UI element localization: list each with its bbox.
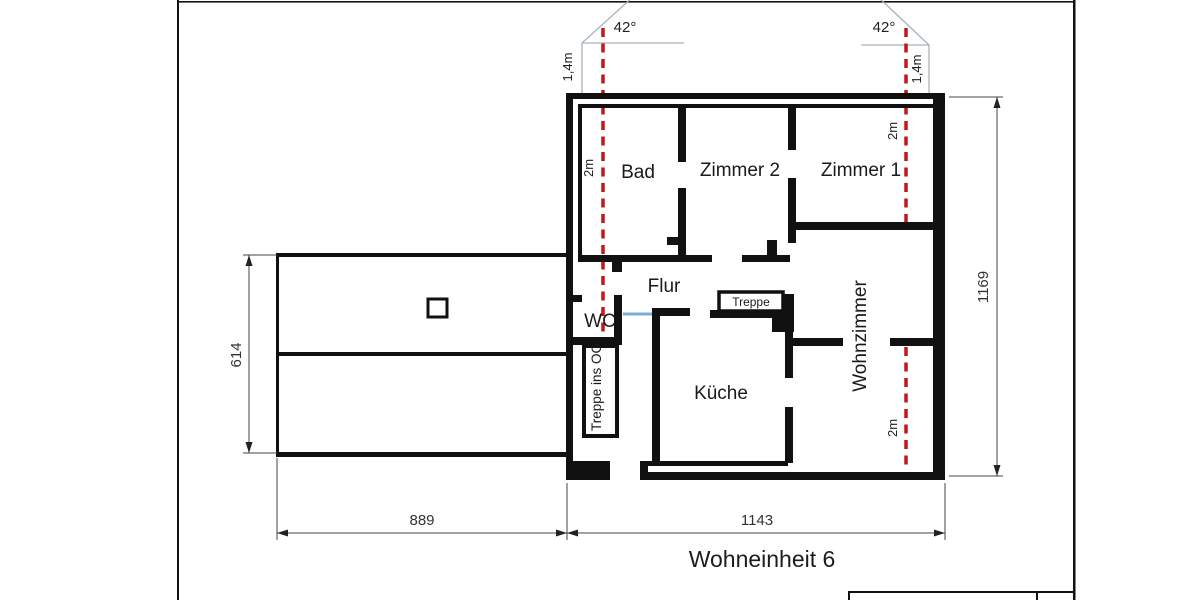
wall-kueche-top xyxy=(652,308,690,316)
house-top-inner-line xyxy=(578,104,933,108)
house-left-inner-line xyxy=(578,104,582,256)
wall-bad-zimmer2-lower xyxy=(678,188,686,262)
treppe-og-label: Treppe ins OG xyxy=(589,343,604,431)
wall-flur-tab xyxy=(612,262,622,272)
room-label-wc: WC xyxy=(584,311,616,332)
entrance-door-post-right xyxy=(640,461,648,472)
left-building-walls xyxy=(276,253,568,457)
dimension-614 xyxy=(243,255,277,453)
dim-label-614: 614 xyxy=(228,342,245,367)
arrowhead-down xyxy=(994,465,1001,476)
arrowhead-up xyxy=(994,97,1001,108)
dim-label-1169: 1169 xyxy=(975,271,992,303)
room-label-wohnzimmer: Wohnzimmer xyxy=(850,280,871,392)
house-right-wall xyxy=(933,93,945,480)
wall-zimmer2-zimmer1-upper xyxy=(788,104,796,150)
room-label-zimmer1: Zimmer 1 xyxy=(821,160,901,181)
wall-wohnzimmer-left xyxy=(793,338,843,346)
dim-label-889: 889 xyxy=(409,512,434,529)
arrowhead-up xyxy=(246,255,253,266)
floor-plan-page: Bad Zimmer 2 Zimmer 1 Flur WC Küche Wohn… xyxy=(0,0,1200,600)
roof-annotation xyxy=(582,0,929,93)
arrowhead-down xyxy=(246,442,253,453)
wall-wc-top-stub xyxy=(573,295,582,302)
room-label-zimmer2: Zimmer 2 xyxy=(700,160,780,181)
wall-zimmer2-door-post xyxy=(767,240,777,255)
wall-kueche-left xyxy=(652,308,660,463)
treppe-box-label: Treppe xyxy=(732,295,770,309)
garage-bottom-wall xyxy=(276,452,568,457)
frame-left-border xyxy=(177,0,179,600)
wall-wohnzimmer-right xyxy=(890,338,933,346)
wall-flur-top-left xyxy=(578,255,712,262)
roof-angle-label-right: 42° xyxy=(873,19,896,36)
title-block-divider-line xyxy=(1036,591,1038,600)
title-block-top-line xyxy=(848,591,1075,593)
arrowhead-left xyxy=(567,530,578,537)
drawing-title: Wohneinheit 6 xyxy=(689,546,836,572)
roof-angle-label-left: 42° xyxy=(614,19,637,36)
garage-middle-wall xyxy=(279,352,568,356)
house-top-wall xyxy=(566,93,945,99)
room-label-kueche: Küche xyxy=(694,383,748,404)
wall-flur-top-right xyxy=(742,255,790,262)
garage-left-wall xyxy=(276,253,279,457)
garage-column xyxy=(428,299,447,317)
entrance-door-post-left xyxy=(602,461,610,472)
house-bottom-wall-left xyxy=(566,472,610,480)
garage-top-wall xyxy=(276,253,568,257)
knee-height-label-right: 1,4m xyxy=(909,55,924,84)
wall-kueche-right-lower xyxy=(785,407,793,463)
room-label-bad: Bad xyxy=(621,162,655,183)
kueche-bottom-inner-line xyxy=(648,461,788,466)
headroom-label-left: 2m xyxy=(581,159,596,177)
headroom-label-right-bottom: 2m xyxy=(885,419,900,437)
arrowhead-right xyxy=(556,530,567,537)
wall-zimmer1-bottom xyxy=(792,222,933,230)
house-bottom-wall-right xyxy=(640,472,945,480)
floor-plan-svg: Bad Zimmer 2 Zimmer 1 Flur WC Küche Wohn… xyxy=(0,0,1200,600)
arrowhead-left xyxy=(277,530,288,537)
arrowhead-right xyxy=(934,530,945,537)
wall-kueche-right-upper xyxy=(785,332,793,378)
title-block-left-line xyxy=(848,591,850,600)
headroom-label-right-top: 2m xyxy=(885,122,900,140)
wall-bad-door-post xyxy=(667,237,678,245)
frame-right-border xyxy=(1073,0,1076,600)
house-left-wall xyxy=(566,93,573,480)
wall-bad-zimmer2-upper xyxy=(678,104,686,162)
wall-zimmer2-zimmer1-lower xyxy=(788,178,796,243)
dim-label-1143: 1143 xyxy=(741,512,773,529)
knee-height-label-left: 1,4m xyxy=(560,53,575,82)
room-label-flur: Flur xyxy=(648,276,681,297)
roof-eaves-left-line xyxy=(582,43,684,93)
